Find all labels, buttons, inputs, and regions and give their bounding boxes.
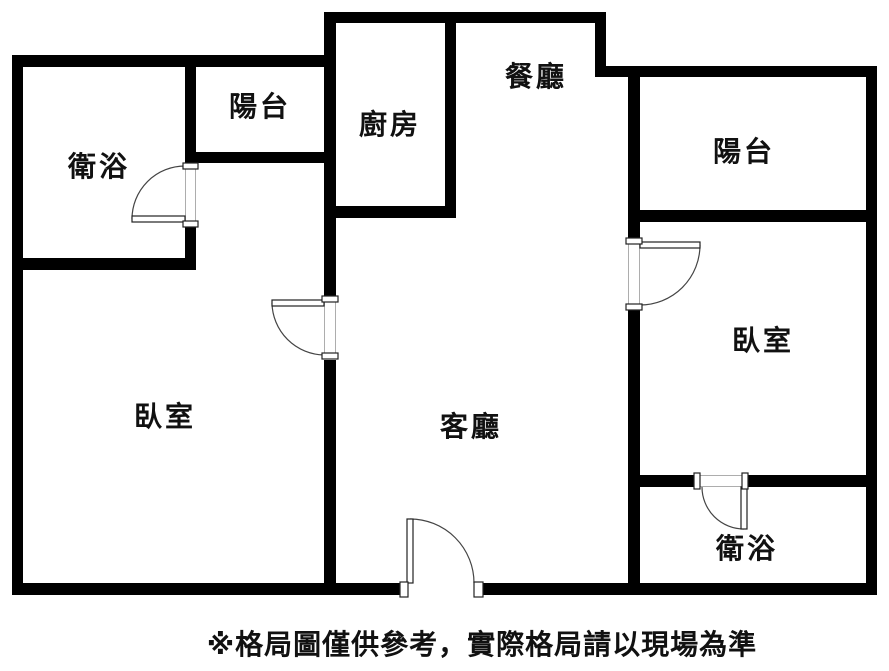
- door-main-entrance: [400, 519, 483, 597]
- label-bedroom-right: 臥室: [732, 327, 794, 355]
- door-bathroom-bottom-right: [694, 473, 748, 529]
- label-dining-room: 餐廳: [505, 63, 567, 91]
- label-bedroom-left: 臥室: [134, 403, 196, 431]
- label-living-room: 客廳: [440, 413, 502, 441]
- label-kitchen: 廚房: [359, 111, 421, 139]
- door-bathroom-top-left: [132, 163, 198, 227]
- label-bathroom-bottom-right: 衛浴: [716, 535, 778, 563]
- label-balcony-right: 陽台: [713, 138, 775, 166]
- disclaimer-text: ※格局圖僅供參考，實際格局請以現場為準: [207, 631, 757, 659]
- label-balcony-top-left: 陽台: [229, 93, 291, 121]
- door-bedroom-left: [272, 296, 338, 359]
- label-bathroom-top-left: 衛浴: [68, 153, 130, 181]
- door-bedroom-right: [626, 238, 700, 310]
- floor-plan: 衛浴 陽台 廚房 餐廳 陽台 臥室 客廳 臥室 衛浴 ※格局圖僅供參考，實際格局…: [0, 0, 889, 671]
